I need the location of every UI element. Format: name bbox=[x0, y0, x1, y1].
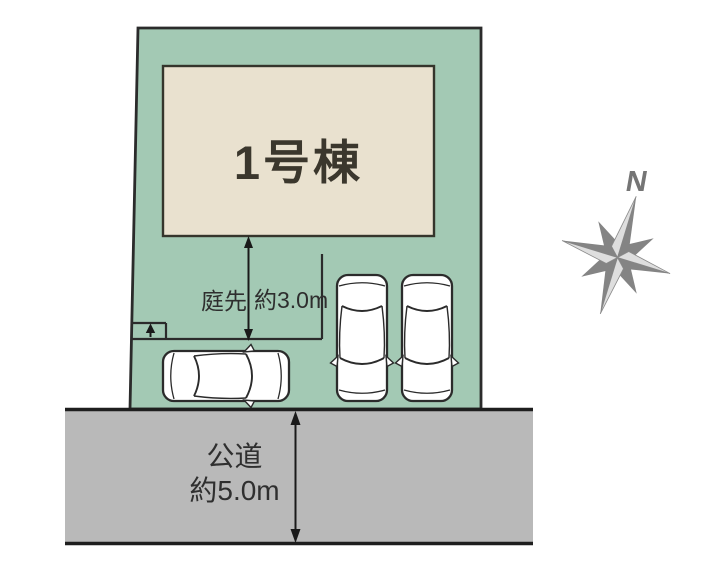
garden-label: 庭先 bbox=[201, 282, 247, 316]
car-top-view-icon bbox=[396, 275, 459, 401]
road-dimension-value: 約5.0m bbox=[157, 474, 312, 508]
building-label: 1号棟 bbox=[163, 124, 434, 193]
garden-dimension-value: 約3.0m bbox=[254, 281, 328, 315]
car-top-view-icon bbox=[331, 275, 394, 401]
road-label-block: 公道 約5.0m bbox=[157, 440, 312, 508]
compass-rose-icon bbox=[545, 179, 689, 330]
car-top-view-icon bbox=[163, 345, 289, 408]
site-plan-drawing bbox=[0, 0, 709, 573]
site-plan-canvas: 1号棟 庭先 約3.0m 公道 約5.0m N bbox=[0, 0, 709, 573]
road-label: 公道 bbox=[157, 440, 312, 474]
